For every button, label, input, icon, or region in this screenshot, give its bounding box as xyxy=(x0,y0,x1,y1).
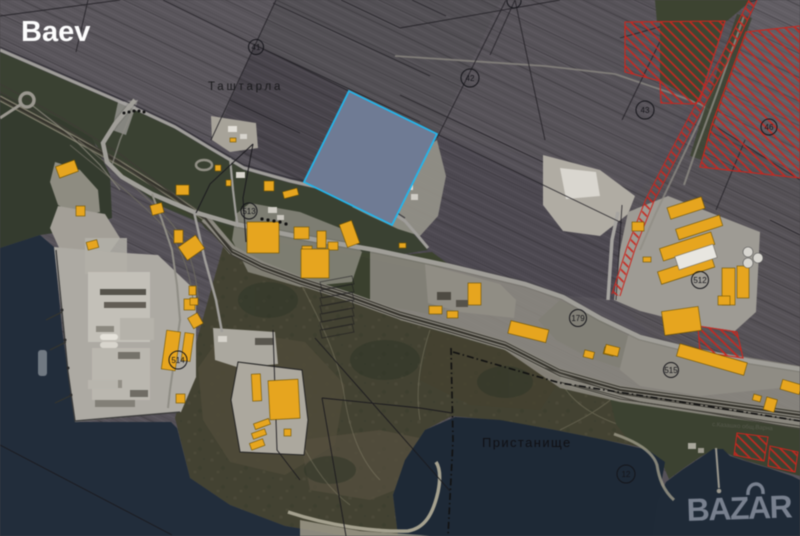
svg-text:514: 514 xyxy=(171,356,185,365)
svg-text:46: 46 xyxy=(765,123,774,132)
svg-text:513: 513 xyxy=(242,207,256,216)
svg-text:43: 43 xyxy=(641,106,650,115)
svg-text:Пристанище: Пристанище xyxy=(482,435,572,450)
svg-text:41: 41 xyxy=(252,43,261,52)
svg-text:512: 512 xyxy=(693,276,707,285)
svg-text:BAZAR: BAZAR xyxy=(686,488,793,528)
svg-text:42: 42 xyxy=(466,74,475,83)
svg-text:Таштарла: Таштарла xyxy=(208,81,283,93)
svg-text:179: 179 xyxy=(571,314,585,323)
svg-text:515: 515 xyxy=(664,366,678,375)
svg-text:Baev: Baev xyxy=(21,16,90,48)
svg-text:12: 12 xyxy=(622,470,631,479)
